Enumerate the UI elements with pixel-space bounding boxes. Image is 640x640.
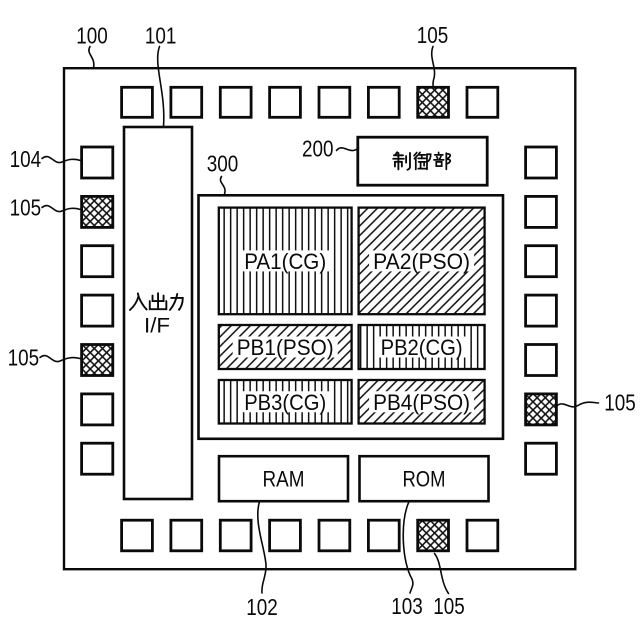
svg-text:105: 105 [433,593,465,619]
svg-text:103: 103 [391,593,423,619]
svg-text:ROM: ROM [403,467,446,492]
svg-text:PA1(CG): PA1(CG) [244,249,326,274]
svg-text:105: 105 [604,390,636,416]
svg-text:300: 300 [207,151,239,177]
svg-text:100: 100 [76,23,108,49]
svg-text:200: 200 [302,135,334,161]
svg-text:PB2(CG): PB2(CG) [381,335,463,360]
svg-text:105: 105 [8,345,40,371]
svg-text:PB4(PSO): PB4(PSO) [373,390,470,415]
svg-text:PA2(PSO): PA2(PSO) [373,249,470,274]
svg-text:I/F: I/F [144,315,170,338]
svg-text:105: 105 [417,22,449,48]
svg-text:102: 102 [246,594,278,620]
svg-text:101: 101 [145,23,177,49]
svg-text:105: 105 [10,195,42,221]
svg-text:PB3(CG): PB3(CG) [244,390,326,415]
svg-text:PB1(PSO): PB1(PSO) [237,335,334,360]
svg-text:RAM: RAM [263,467,305,492]
svg-text:104: 104 [10,146,42,172]
